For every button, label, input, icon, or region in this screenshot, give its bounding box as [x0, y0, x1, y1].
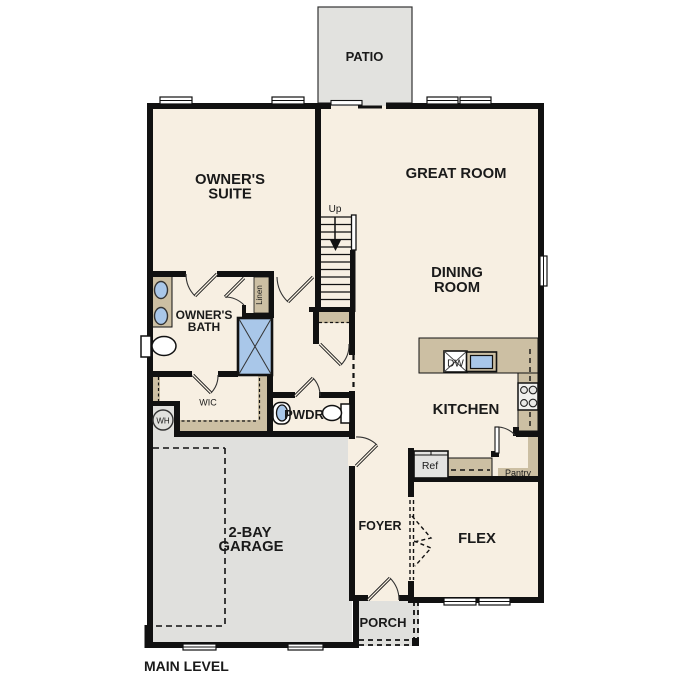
svg-text:GREAT ROOM: GREAT ROOM — [406, 166, 507, 182]
svg-text:WIC: WIC — [199, 398, 217, 408]
svg-text:KITCHEN: KITCHEN — [433, 401, 500, 418]
svg-text:PWDR: PWDR — [284, 407, 324, 422]
svg-text:PATIO: PATIO — [346, 49, 384, 64]
svg-text:WH: WH — [156, 417, 170, 426]
svg-text:Pantry: Pantry — [505, 468, 532, 478]
svg-text:Up: Up — [329, 204, 342, 215]
svg-text:Ref: Ref — [422, 460, 438, 472]
svg-text:BATH: BATH — [188, 320, 220, 334]
svg-text:PORCH: PORCH — [360, 615, 407, 630]
svg-text:SUITE: SUITE — [208, 187, 252, 203]
svg-text:FOYER: FOYER — [358, 519, 401, 533]
svg-text:Linen: Linen — [255, 285, 264, 305]
svg-text:ROOM: ROOM — [434, 280, 480, 296]
svg-text:DINING: DINING — [431, 265, 483, 281]
svg-text:DW: DW — [447, 359, 464, 370]
svg-text:MAIN LEVEL: MAIN LEVEL — [144, 658, 229, 674]
svg-text:FLEX: FLEX — [458, 531, 496, 547]
svg-text:GARAGE: GARAGE — [219, 539, 284, 555]
